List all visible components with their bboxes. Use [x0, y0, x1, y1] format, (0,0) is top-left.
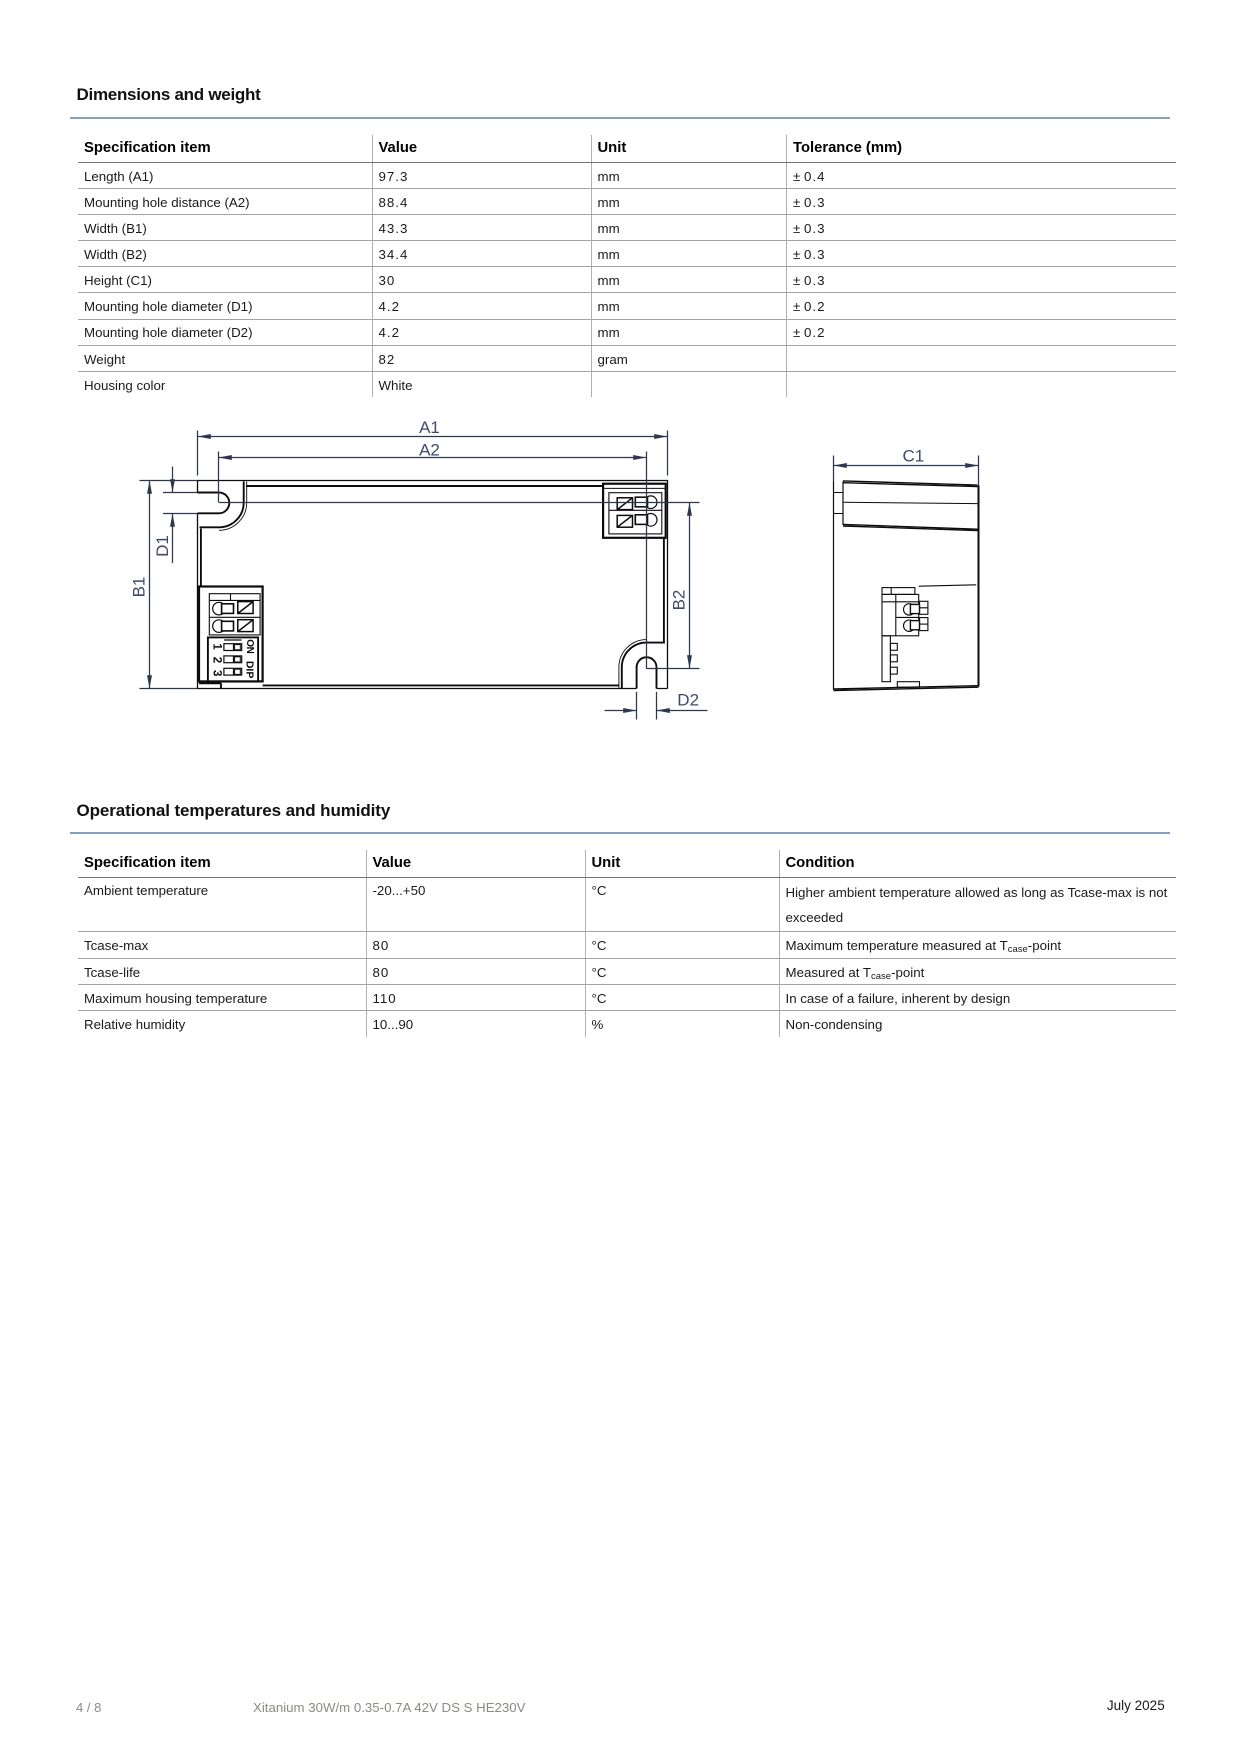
svg-text:A2: A2 — [419, 440, 440, 459]
svg-text:DIP: DIP — [244, 661, 256, 679]
svg-text:2: 2 — [211, 657, 223, 663]
svg-text:1: 1 — [211, 643, 223, 650]
svg-text:ON: ON — [244, 639, 255, 653]
svg-text:B1: B1 — [130, 577, 149, 598]
svg-text:A1: A1 — [419, 418, 440, 437]
svg-text:D2: D2 — [677, 691, 699, 710]
svg-text:C1: C1 — [903, 446, 925, 465]
svg-text:3: 3 — [211, 670, 223, 676]
svg-text:B2: B2 — [670, 590, 689, 611]
svg-text:D1: D1 — [153, 535, 172, 557]
